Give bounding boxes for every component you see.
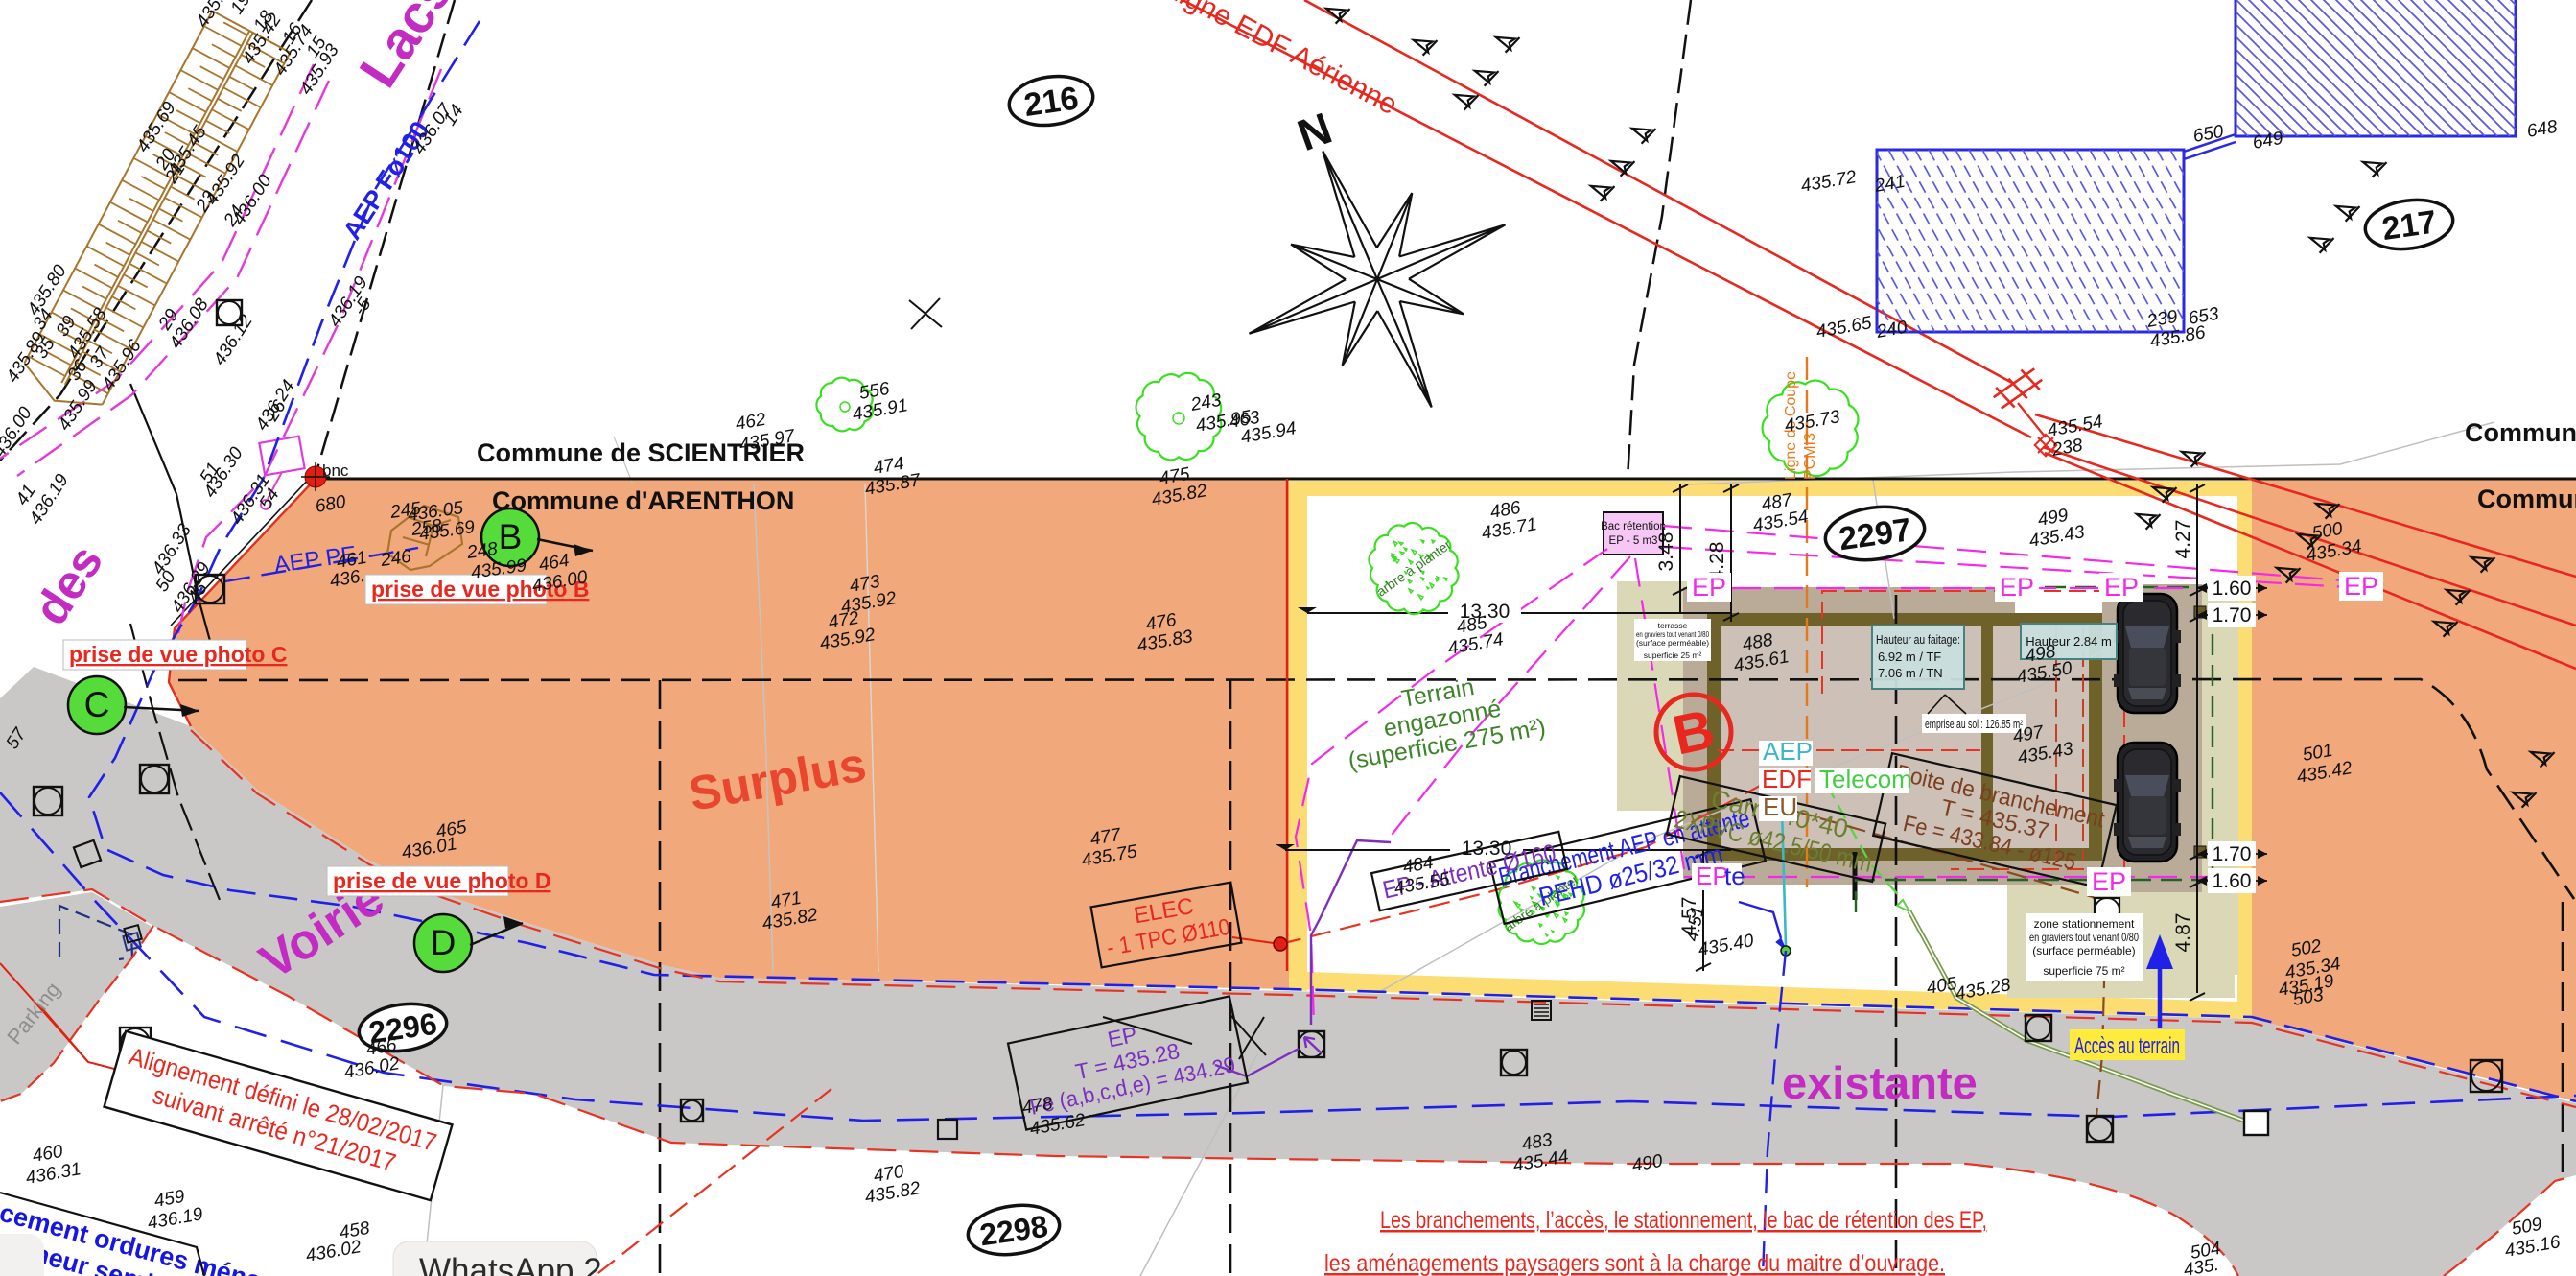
svg-text:1.60: 1.60 xyxy=(2213,578,2252,600)
svg-text:Telecom: Telecom xyxy=(1819,765,1912,793)
svg-text:1.70: 1.70 xyxy=(2213,604,2252,626)
svg-text:EP: EP xyxy=(2092,867,2126,896)
svg-text:(surface perméable): (surface perméable) xyxy=(1636,638,1709,648)
svg-text:existante: existante xyxy=(1782,1057,1978,1108)
svg-text:3.48: 3.48 xyxy=(1655,532,1677,572)
svg-text:AEP: AEP xyxy=(1763,737,1813,766)
svg-text:WhatsApp 2: WhatsApp 2 xyxy=(419,1252,602,1276)
svg-text:C: C xyxy=(84,685,110,724)
svg-text:prise de vue photo D: prise de vue photo D xyxy=(333,868,550,893)
svg-text:en graviers tout venant 0/80: en graviers tout venant 0/80 xyxy=(2029,931,2139,944)
svg-text:217: 217 xyxy=(2379,203,2438,248)
svg-text:EP: EP xyxy=(2000,573,2034,602)
svg-text:EU: EU xyxy=(1763,792,1797,821)
svg-text:EP: EP xyxy=(2344,572,2378,601)
svg-text:Commune d'ARENTHON: Commune d'ARENTHON xyxy=(492,486,794,515)
svg-text:les aménagements paysagers son: les aménagements paysagers sont à la cha… xyxy=(1324,1250,1945,1276)
svg-text:EP: EP xyxy=(2104,573,2139,602)
svg-text:zone stationnement: zone stationnement xyxy=(2034,917,2135,931)
svg-text:6.92 m / TF: 6.92 m / TF xyxy=(1878,650,1941,664)
svg-text:Commune: Commune xyxy=(2477,484,2576,513)
svg-text:(surface perméable): (surface perméable) xyxy=(2032,944,2135,957)
svg-text:1.60: 1.60 xyxy=(2213,870,2252,892)
svg-text:Commune: Commune xyxy=(2465,418,2576,447)
svg-text:4.87: 4.87 xyxy=(2172,913,2194,953)
svg-text:Les branchements, l’accès, le: Les branchements, l’accès, le stationnem… xyxy=(1380,1207,1987,1234)
svg-text:4.27: 4.27 xyxy=(2172,520,2194,559)
svg-text:bnc: bnc xyxy=(322,461,349,480)
svg-text:Hauteur au faitage:: Hauteur au faitage: xyxy=(1876,632,1960,647)
svg-text:Accès au terrain: Accès au terrain xyxy=(2074,1033,2180,1059)
svg-text:emprise au sol : 126.85 m²: emprise au sol : 126.85 m² xyxy=(1925,718,2023,731)
svg-text:EP: EP xyxy=(1692,573,1726,602)
svg-text:superficie 75 m²: superficie 75 m² xyxy=(2043,964,2124,978)
svg-text:Bac rétention: Bac rétention xyxy=(1601,521,1666,532)
svg-text:D: D xyxy=(431,923,457,962)
svg-text:216: 216 xyxy=(1021,80,1080,124)
svg-text:EP - 5 m3: EP - 5 m3 xyxy=(1609,535,1658,547)
svg-text:B: B xyxy=(499,517,523,556)
svg-text:te: te xyxy=(1724,862,1745,890)
svg-text:PCMI3: PCMI3 xyxy=(1802,433,1818,480)
svg-text:prise de vue photo C: prise de vue photo C xyxy=(69,642,287,667)
svg-text:EDF: EDF xyxy=(1762,765,1812,793)
svg-text:7.06 m / TN: 7.06 m / TN xyxy=(1878,666,1943,680)
svg-text:superficie 25 m²: superficie 25 m² xyxy=(1644,650,1702,660)
svg-text:1.70: 1.70 xyxy=(2213,843,2252,865)
